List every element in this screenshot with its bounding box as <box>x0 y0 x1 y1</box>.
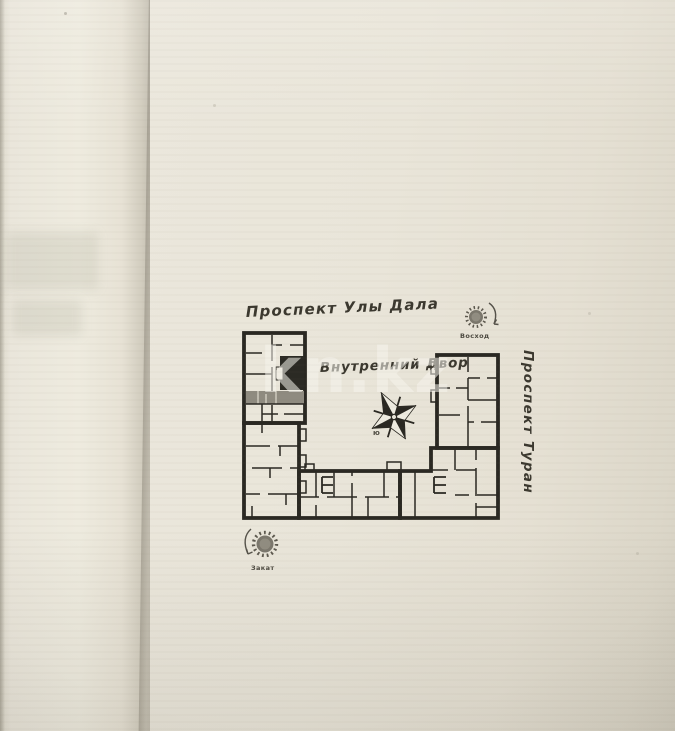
sunrise-icon <box>467 303 499 327</box>
sunset-icon <box>245 529 276 556</box>
photographed-floorplan-page: ю Восход Закат Проспект Улы Дала Внутрен… <box>0 0 675 731</box>
building-bottom-wing <box>299 471 400 518</box>
sunset-label: Закат <box>251 564 275 572</box>
sun-rotation-arrow <box>489 303 496 324</box>
street-label-right: Проспект Туран <box>520 350 536 494</box>
building-left-wing-lower <box>244 423 299 518</box>
kn-kz-watermark: kn.kz <box>260 334 451 407</box>
sunrise-label: Восход <box>460 332 490 340</box>
sun-rotation-arrow <box>245 529 251 554</box>
compass-south-label: ю <box>373 429 380 437</box>
street-label-top: Проспект Улы Дала <box>245 295 439 321</box>
